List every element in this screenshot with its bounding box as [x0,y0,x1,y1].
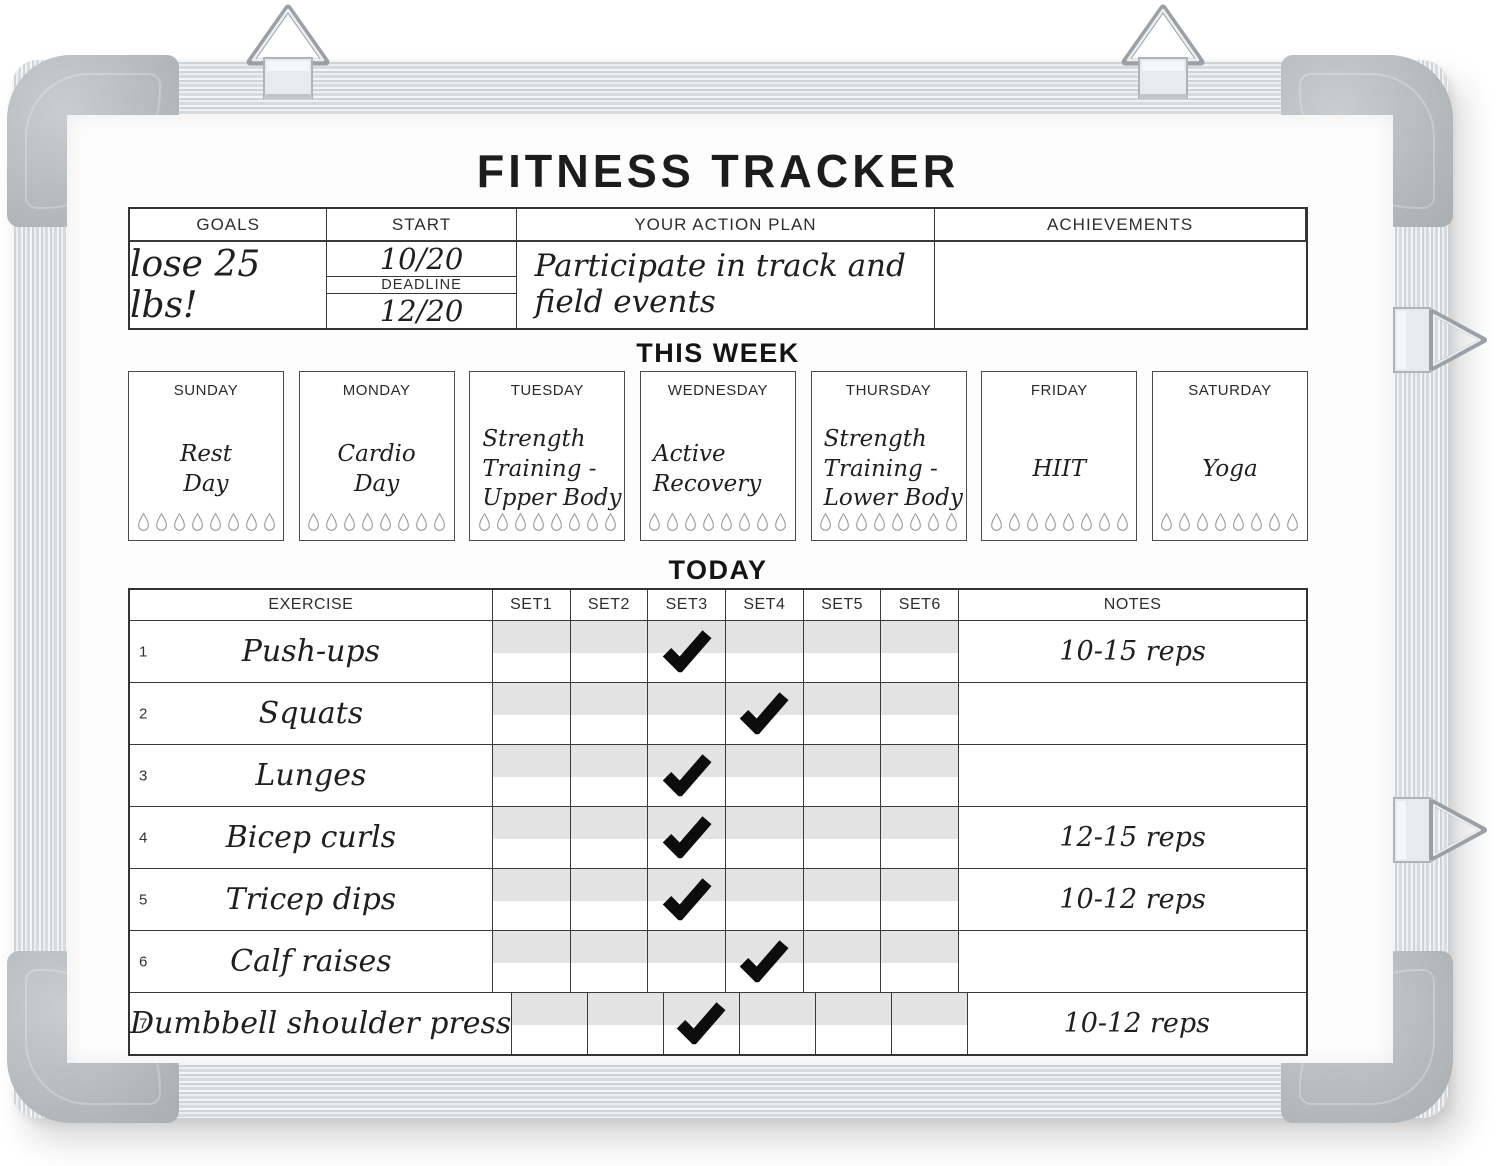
set-cell [493,869,571,930]
notes-cell [959,745,1306,806]
set-cell [881,621,959,682]
droplet-icon [172,512,187,532]
notes-cell: 10-12 reps [968,993,1306,1054]
droplet-icon [701,512,716,532]
droplet-row [470,512,624,532]
checkmark-icon [661,628,713,672]
set-cell [648,869,726,930]
exercise-name: Dumbbell shoulder press [130,1006,511,1041]
set-cell [493,683,571,744]
day-card-sunday: SUNDAY Rest Day [128,371,284,541]
frame-top [12,60,1448,115]
set-cell [648,683,726,744]
row-number: 7 [139,1015,147,1032]
row-number: 3 [139,767,147,784]
set-cell [726,869,804,930]
droplet-icon [836,512,851,532]
exercise-name: Bicep curls [226,820,396,855]
droplet-icon [549,512,564,532]
notes-cell: 10-15 reps [959,621,1306,682]
day-card-saturday: SATURDAY Yoga [1152,371,1308,541]
deadline-label: DEADLINE [327,277,515,294]
set-cell [493,745,571,806]
droplet-icon [396,512,411,532]
row-number: 5 [139,891,147,908]
droplet-icon [360,512,375,532]
droplet-icon [414,512,429,532]
board-title: FITNESS TRACKER [128,115,1308,202]
droplet-icon [1231,512,1246,532]
droplet-icon [1177,512,1192,532]
set-cell [571,683,649,744]
set-cell [881,807,959,868]
droplet-icon [190,512,205,532]
today-table-header: EXERCISE SET1 SET2 SET3 SET4 SET5 SET6 N… [130,590,1306,620]
exercise-name: Squats [259,696,363,731]
goal-value: lose 25 lbs! [130,244,326,326]
droplet-icon [1213,512,1228,532]
day-label: MONDAY [343,382,411,399]
goal-cell: lose 25 lbs! [130,242,327,328]
droplet-icon [989,512,1004,532]
set-cell [740,993,816,1054]
notes-text: 10-12 reps [1059,884,1205,915]
droplet-icon [908,512,923,532]
notes-cell: 10-12 reps [959,869,1306,930]
droplet-icon [647,512,662,532]
droplet-icon [226,512,241,532]
set-cell [493,931,571,992]
set-cell [804,745,882,806]
today-table: EXERCISE SET1 SET2 SET3 SET4 SET5 SET6 N… [128,588,1308,1056]
set-cell [816,993,892,1054]
checkmark-icon [661,876,713,920]
droplet-icon [1249,512,1264,532]
checkmark-icon [661,814,713,858]
day-label: THURSDAY [846,382,931,399]
set-cell [493,621,571,682]
set-cell [571,807,649,868]
droplet-icon [773,512,788,532]
side-hook-icon [1392,294,1494,386]
droplet-icon [208,512,223,532]
set-cell [726,683,804,744]
goals-header: GOALS [130,209,327,242]
set-cell [804,621,882,682]
day-label: WEDNESDAY [668,382,768,399]
set4-header: SET4 [726,590,804,620]
whiteboard-surface: FITNESS TRACKER GOALS START YOUR ACTION … [67,115,1393,1063]
set2-header: SET2 [571,590,649,620]
droplet-icon [262,512,277,532]
exercise-name: Calf raises [230,944,391,979]
set6-header: SET6 [881,590,959,620]
set-cell [726,931,804,992]
droplet-icon [342,512,357,532]
set-cell [664,993,740,1054]
set-cell [493,807,571,868]
droplet-icon [513,512,528,532]
exercise-cell: 5 Tricep dips [130,869,493,930]
droplet-icon [495,512,510,532]
achievements-header: ACHIEVEMENTS [935,209,1306,242]
frame-bottom [12,1063,1448,1118]
set-cell [881,931,959,992]
droplet-row [300,512,454,532]
exercise-row: 6 Calf raises [130,930,1306,992]
notes-text: 12-15 reps [1059,822,1205,853]
product-photo: FITNESS TRACKER GOALS START YOUR ACTION … [0,0,1500,1166]
row-number: 1 [139,643,147,660]
hanging-hook-icon [1115,0,1211,112]
start-deadline-cell: 10/20 DEADLINE 12/20 [327,242,516,328]
set-cell [892,993,968,1054]
row-number: 6 [139,953,147,970]
action-plan-cell: Participate in track and field events [517,242,936,328]
droplet-icon [136,512,151,532]
set-cell [512,993,588,1054]
droplet-icon [244,512,259,532]
droplet-icon [378,512,393,532]
achievements-cell [935,242,1306,328]
set-cell [804,869,882,930]
droplet-icon [890,512,905,532]
action-plan-value: Participate in track and field events [517,249,935,320]
set3-header: SET3 [648,590,726,620]
side-hook-icon [1392,784,1494,876]
day-card-thursday: THURSDAY Strength Training - Lower Body [811,371,967,541]
droplet-icon [1267,512,1282,532]
whiteboard: FITNESS TRACKER GOALS START YOUR ACTION … [12,60,1448,1118]
droplet-icon [1195,512,1210,532]
droplet-icon [1115,512,1130,532]
set-cell [804,807,882,868]
droplet-row [982,512,1136,532]
day-label: SUNDAY [174,382,238,399]
droplet-icon [737,512,752,532]
droplet-icon [432,512,447,532]
notes-header: NOTES [959,590,1306,620]
notes-cell [959,931,1306,992]
droplet-row [641,512,795,532]
exercise-cell: 2 Squats [130,683,493,744]
today-heading: TODAY [128,555,1308,585]
droplet-icon [944,512,959,532]
set-cell [571,621,649,682]
droplet-icon [1097,512,1112,532]
droplet-icon [306,512,321,532]
droplet-icon [1285,512,1300,532]
exercise-cell: 4 Bicep curls [130,807,493,868]
day-card-monday: MONDAY Cardio Day [299,371,455,541]
droplet-icon [755,512,770,532]
exercise-cell: 3 Lunges [130,745,493,806]
droplet-icon [567,512,582,532]
goals-table: GOALS START YOUR ACTION PLAN ACHIEVEMENT… [128,207,1308,330]
week-cards: SUNDAY Rest Day MONDAY Cardio Day TUESDA… [128,371,1308,541]
day-label: FRIDAY [1031,382,1088,399]
droplet-row [812,512,966,532]
droplet-row [129,512,283,532]
checkmark-icon [738,938,790,982]
droplet-icon [585,512,600,532]
notes-cell [959,683,1306,744]
droplet-icon [665,512,680,532]
exercise-name: Push-ups [242,634,380,669]
checkmark-icon [661,752,713,796]
day-card-friday: FRIDAY HIIT [981,371,1137,541]
day-card-wednesday: WEDNESDAY Active Recovery [640,371,796,541]
droplet-icon [683,512,698,532]
exercise-cell: 7 Dumbbell shoulder press [130,993,512,1054]
exercise-row: 2 Squats [130,682,1306,744]
checkmark-icon [675,1000,727,1044]
set5-header: SET5 [804,590,882,620]
set-cell [648,807,726,868]
exercise-name: Lunges [255,758,366,793]
hanging-hook-icon [240,0,336,112]
droplet-icon [1159,512,1174,532]
exercise-cell: 6 Calf raises [130,931,493,992]
set-cell [726,745,804,806]
set-cell [881,745,959,806]
day-label: SATURDAY [1188,382,1271,399]
exercise-name: Tricep dips [226,882,397,917]
set-cell [588,993,664,1054]
droplet-icon [872,512,887,532]
action-plan-header: YOUR ACTION PLAN [517,209,936,242]
droplet-icon [324,512,339,532]
exercise-row: 1 Push-ups 10-15 reps [130,620,1306,682]
droplet-icon [1079,512,1094,532]
set-cell [648,745,726,806]
droplet-icon [926,512,941,532]
droplet-icon [854,512,869,532]
droplet-icon [603,512,618,532]
notes-text: 10-15 reps [1059,636,1205,667]
checkmark-icon [738,690,790,734]
start-header: START [327,209,516,242]
start-date: 10/20 [327,242,515,277]
droplet-icon [1061,512,1076,532]
exercise-row: 4 Bicep curls 12-15 reps [130,806,1306,868]
set-cell [804,683,882,744]
day-label: TUESDAY [511,382,584,399]
set-cell [648,621,726,682]
row-number: 4 [139,829,147,846]
set-cell [804,931,882,992]
set-cell [571,931,649,992]
notes-text: 10-12 reps [1064,1008,1210,1039]
set-cell [726,621,804,682]
set-cell [881,869,959,930]
set-cell [571,869,649,930]
droplet-icon [818,512,833,532]
set-cell [726,807,804,868]
row-number: 2 [139,705,147,722]
droplet-icon [154,512,169,532]
droplet-icon [477,512,492,532]
exercise-header: EXERCISE [130,590,493,620]
exercise-row: 3 Lunges [130,744,1306,806]
droplet-row [1153,512,1307,532]
exercise-row: 7 Dumbbell shoulder press 10-12 reps [130,992,1306,1054]
droplet-icon [531,512,546,532]
deadline-date: 12/20 [327,294,515,328]
exercise-row: 5 Tricep dips 10-12 reps [130,868,1306,930]
set1-header: SET1 [493,590,571,620]
day-card-tuesday: TUESDAY Strength Training - Upper Body [469,371,625,541]
droplet-icon [1043,512,1058,532]
notes-cell: 12-15 reps [959,807,1306,868]
exercise-cell: 1 Push-ups [130,621,493,682]
set-cell [571,745,649,806]
droplet-icon [1025,512,1040,532]
set-cell [648,931,726,992]
this-week-heading: THIS WEEK [128,338,1308,368]
set-cell [881,683,959,744]
droplet-icon [719,512,734,532]
droplet-icon [1007,512,1022,532]
